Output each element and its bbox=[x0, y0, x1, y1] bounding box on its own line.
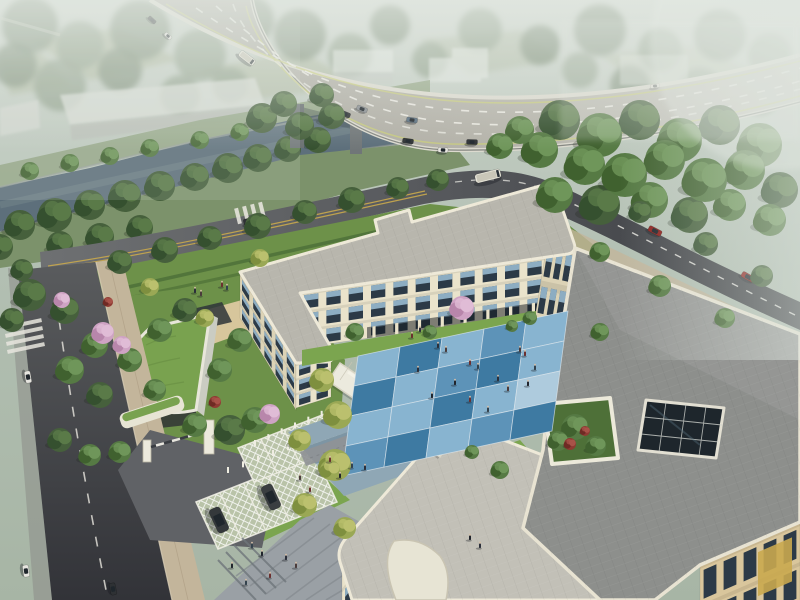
left-haze bbox=[0, 0, 300, 200]
bridge-haze bbox=[560, 20, 800, 140]
window bbox=[724, 556, 737, 590]
fence-post bbox=[267, 434, 269, 440]
fence-post bbox=[272, 450, 274, 456]
arcade-column bbox=[395, 323, 398, 335]
fence-post bbox=[227, 467, 229, 473]
window bbox=[704, 564, 717, 598]
fence-post bbox=[254, 440, 256, 446]
fence-post bbox=[281, 428, 283, 434]
fence-post bbox=[242, 461, 244, 467]
window bbox=[744, 547, 757, 581]
fence-post bbox=[294, 423, 296, 429]
tree bbox=[0, 308, 24, 332]
atrium-skylight bbox=[638, 400, 724, 458]
arcade-column bbox=[372, 326, 375, 338]
rendering-canvas bbox=[0, 0, 800, 600]
architectural-rendering bbox=[0, 0, 800, 600]
gate-pillar bbox=[143, 440, 151, 462]
arcade-column bbox=[441, 316, 444, 327]
fence-post bbox=[307, 417, 309, 423]
fence-post bbox=[321, 411, 323, 417]
fence-post bbox=[257, 456, 259, 462]
